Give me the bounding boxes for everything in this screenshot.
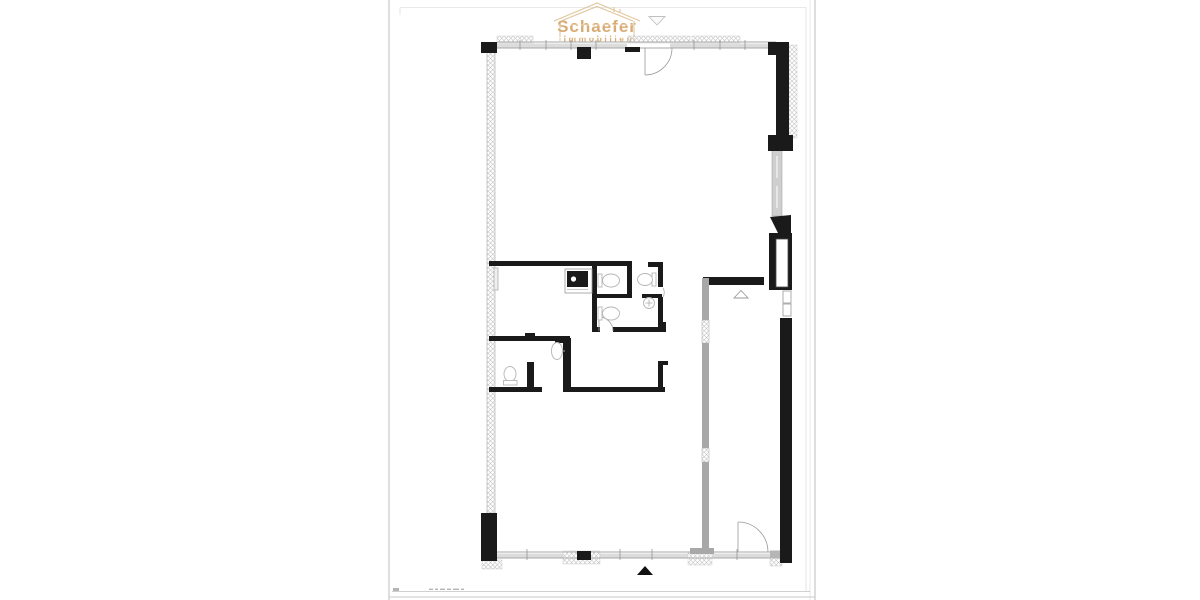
pennant-triangle-icon xyxy=(649,17,665,26)
sheet-frame xyxy=(389,0,815,600)
door-swing xyxy=(645,48,672,75)
pillar xyxy=(481,42,497,53)
pillar xyxy=(481,513,497,561)
door-marker-triangle-icon xyxy=(734,291,748,299)
sink xyxy=(644,298,655,309)
toilet xyxy=(504,367,518,386)
window-bands xyxy=(482,36,797,569)
footer-fineprint xyxy=(393,588,464,591)
radiator xyxy=(494,268,498,290)
door-swing xyxy=(738,522,768,552)
sink xyxy=(552,343,566,360)
toilet xyxy=(638,273,657,286)
north-arrow-icon xyxy=(637,566,653,575)
walls xyxy=(481,42,793,563)
floor-plan-page: Schaefer Immobilien xyxy=(0,0,1200,600)
wall-corner xyxy=(770,215,791,233)
door-swings xyxy=(599,48,768,552)
floor-plan-drawing: Schaefer Immobilien xyxy=(0,0,1200,600)
toilet xyxy=(598,274,620,287)
wall-niche xyxy=(776,239,788,287)
kitchen-unit xyxy=(565,269,592,293)
toilet xyxy=(598,307,620,320)
pillar xyxy=(577,47,591,59)
door-swing xyxy=(663,288,664,297)
corridor-partition xyxy=(690,278,714,554)
right-door-panels xyxy=(783,291,791,316)
